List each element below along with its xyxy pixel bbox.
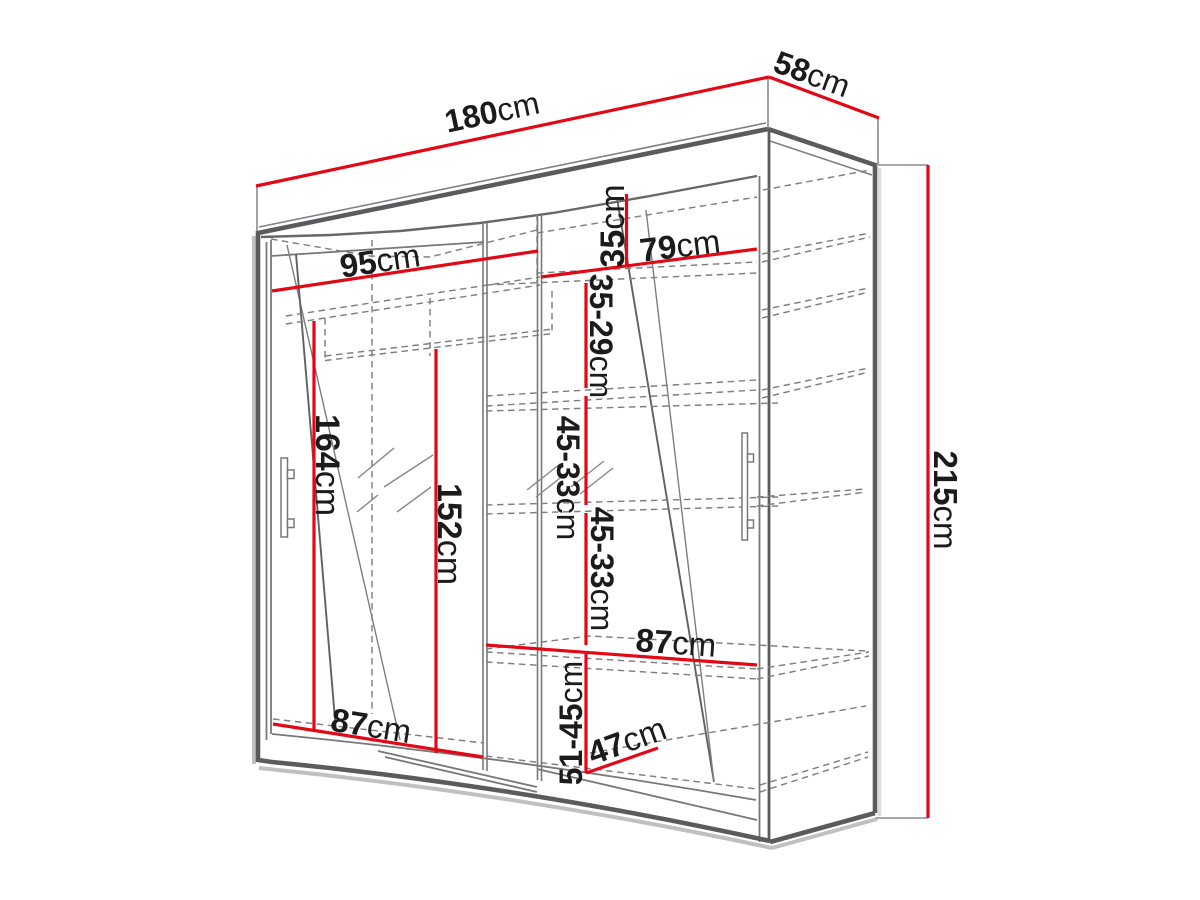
svg-text:87cm: 87cm	[634, 621, 717, 664]
svg-text:95cm: 95cm	[337, 236, 422, 285]
svg-text:58cm: 58cm	[769, 44, 855, 105]
svg-text:87cm: 87cm	[328, 701, 414, 750]
svg-text:215cm: 215cm	[927, 450, 964, 549]
svg-text:180cm: 180cm	[441, 84, 542, 139]
svg-text:79cm: 79cm	[638, 222, 723, 269]
svg-text:35-29cm: 35-29cm	[583, 274, 619, 399]
svg-text:45-33cm: 45-33cm	[584, 507, 620, 632]
svg-text:45-33cm: 45-33cm	[550, 416, 586, 541]
svg-text:164cm: 164cm	[308, 414, 346, 516]
svg-text:152cm: 152cm	[430, 483, 468, 585]
svg-text:51-45cm: 51-45cm	[553, 661, 589, 786]
svg-text:47cm: 47cm	[583, 709, 672, 771]
svg-text:35cm: 35cm	[594, 184, 632, 267]
